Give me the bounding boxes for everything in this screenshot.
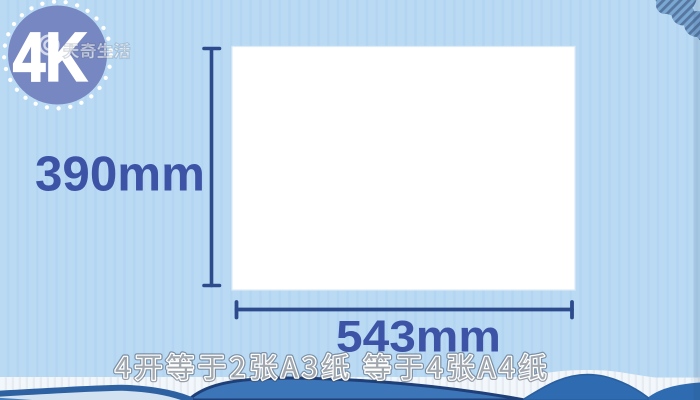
svg-text:390mm: 390mm <box>35 147 205 202</box>
